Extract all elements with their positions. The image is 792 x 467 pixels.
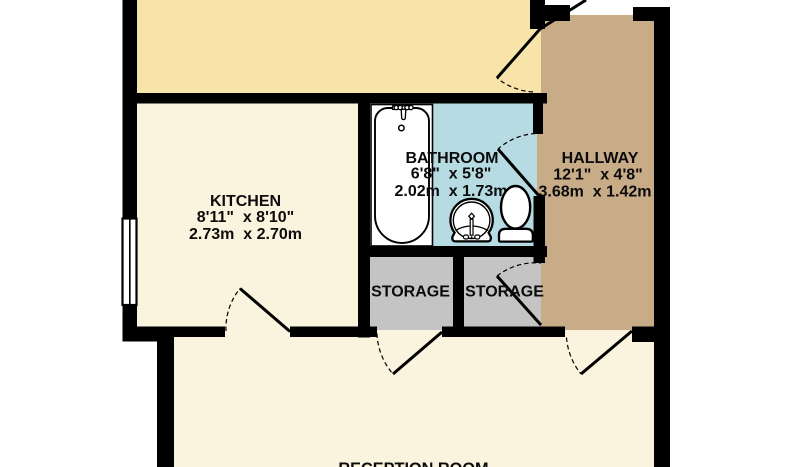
svg-text:8'11" x 8'10": 8'11" x 8'10" — [197, 209, 295, 226]
svg-text:2.02m x 1.73m: 2.02m x 1.73m — [395, 183, 508, 200]
svg-text:3.68m x 1.42m: 3.68m x 1.42m — [539, 183, 652, 200]
svg-text:STORAGE: STORAGE — [371, 284, 450, 301]
svg-text:KITCHEN: KITCHEN — [210, 193, 281, 210]
svg-text:12'1" x 4'8": 12'1" x 4'8" — [553, 167, 643, 184]
svg-text:RECEPTION ROOM: RECEPTION ROOM — [338, 460, 488, 467]
svg-text:STORAGE: STORAGE — [465, 284, 544, 301]
svg-text:HALLWAY: HALLWAY — [562, 150, 639, 167]
svg-text:2.73m x 2.70m: 2.73m x 2.70m — [189, 226, 302, 243]
svg-text:6'8" x 5'8": 6'8" x 5'8" — [411, 166, 492, 183]
svg-text:BATHROOM: BATHROOM — [405, 150, 498, 167]
